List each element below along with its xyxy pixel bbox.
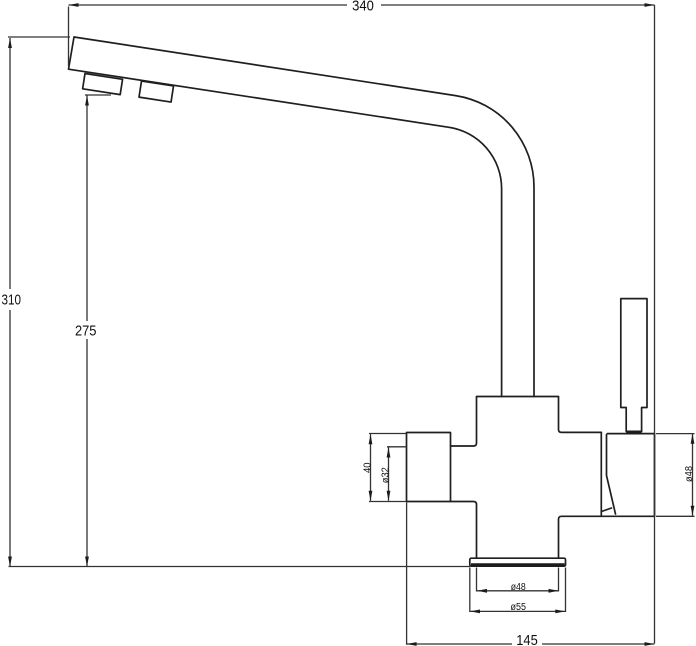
svg-text:340: 340 bbox=[352, 0, 374, 15]
svg-text:ø32: ø32 bbox=[380, 467, 391, 483]
svg-text:ø48: ø48 bbox=[511, 582, 526, 593]
svg-text:145: 145 bbox=[516, 632, 538, 646]
svg-text:275: 275 bbox=[75, 323, 97, 340]
svg-text:310: 310 bbox=[1, 292, 21, 309]
svg-text:40: 40 bbox=[363, 462, 374, 473]
svg-text:ø48: ø48 bbox=[684, 466, 695, 482]
svg-text:ø55: ø55 bbox=[511, 602, 527, 613]
